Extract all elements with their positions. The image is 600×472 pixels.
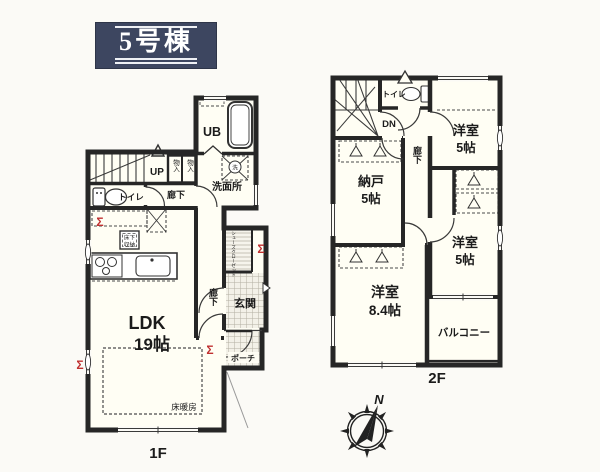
room-label-toilet-2f: トイレ — [382, 90, 406, 99]
room-label-washroom: 洗面所 — [212, 180, 242, 193]
compass-north-label: N — [374, 392, 384, 407]
room-label-storage: 納戸 — [358, 174, 384, 189]
shutter-mark: Σ — [96, 215, 103, 229]
room-label-floor-heating: 床暖房 — [171, 402, 197, 412]
label-stairs-dn: DN — [382, 119, 396, 130]
label-underfloor-2: 収納 — [124, 241, 136, 249]
floor2-room-fill — [333, 78, 500, 365]
building-number-text: 5号棟 — [119, 27, 193, 56]
room-label-toilet-1f: トイレ — [118, 192, 144, 202]
shutter-mark: Σ — [257, 242, 264, 256]
room-label-unit-bath: UB — [203, 125, 221, 139]
room-label-bedroom-big-size: 8.4帖 — [369, 302, 402, 318]
room-label-bedroom-mid: 洋室 — [452, 235, 478, 250]
floor2-plan: トイレ DN 廊下 洋室 5帖 納戸 5帖 洋室 5帖 洋室 8.4帖 バルコニ… — [330, 71, 504, 387]
room-label-shoes-closet: シューズクローゼット — [231, 231, 237, 277]
room-label-storage-size: 5帖 — [361, 191, 381, 206]
room-label-porch: ポーチ — [231, 353, 255, 363]
building-number-badge: 5号棟 — [96, 23, 216, 68]
room-label-hall-upper: 廊下 — [167, 189, 185, 200]
shoes-closet-floor — [226, 230, 252, 271]
room-label-bedroom-big: 洋室 — [371, 284, 399, 300]
building-number-badge-frame: 5号棟 — [115, 26, 197, 64]
floor1-label: 1F — [149, 445, 167, 462]
bathtub-icon — [228, 102, 252, 148]
room-label-bedroom-top: 洋室 — [453, 123, 479, 138]
floorplan-canvas: LDK 19帖 床暖房 床下 収納 トイレ 廊下 廊下 UP UB 洗面所 物入… — [0, 0, 600, 472]
shutter-mark: Σ — [206, 343, 213, 357]
floorplan-page: LDK 19帖 床暖房 床下 収納 トイレ 廊下 廊下 UP UB 洗面所 物入… — [0, 0, 600, 472]
room-label-entrance: 玄関 — [234, 296, 256, 310]
compass-rose: N — [340, 392, 394, 458]
label-underfloor-1: 床下 — [124, 234, 136, 242]
floor1-plan: LDK 19帖 床暖房 床下 収納 トイレ 廊下 廊下 UP UB 洗面所 物入… — [76, 95, 270, 463]
label-stairs-up: UP — [150, 167, 164, 178]
floor2-label: 2F — [428, 370, 446, 387]
kitchen-counter-icon — [90, 253, 177, 281]
shutter-mark: Σ — [76, 358, 83, 372]
room-label-balcony: バルコニー — [438, 327, 490, 339]
toilet-icon-2f — [402, 86, 429, 102]
site-line — [227, 372, 248, 428]
room-label-ldk-size: 19帖 — [134, 334, 170, 354]
room-label-hall-lower: 廊下 — [208, 287, 218, 307]
room-label-hall-2f: 廊下 — [412, 145, 422, 165]
room-label-ldk: LDK — [129, 313, 166, 333]
room-label-bedroom-mid-size: 5帖 — [455, 252, 475, 267]
room-label-bedroom-top-size: 5帖 — [456, 140, 476, 155]
label-washer: 洗 — [232, 164, 238, 172]
